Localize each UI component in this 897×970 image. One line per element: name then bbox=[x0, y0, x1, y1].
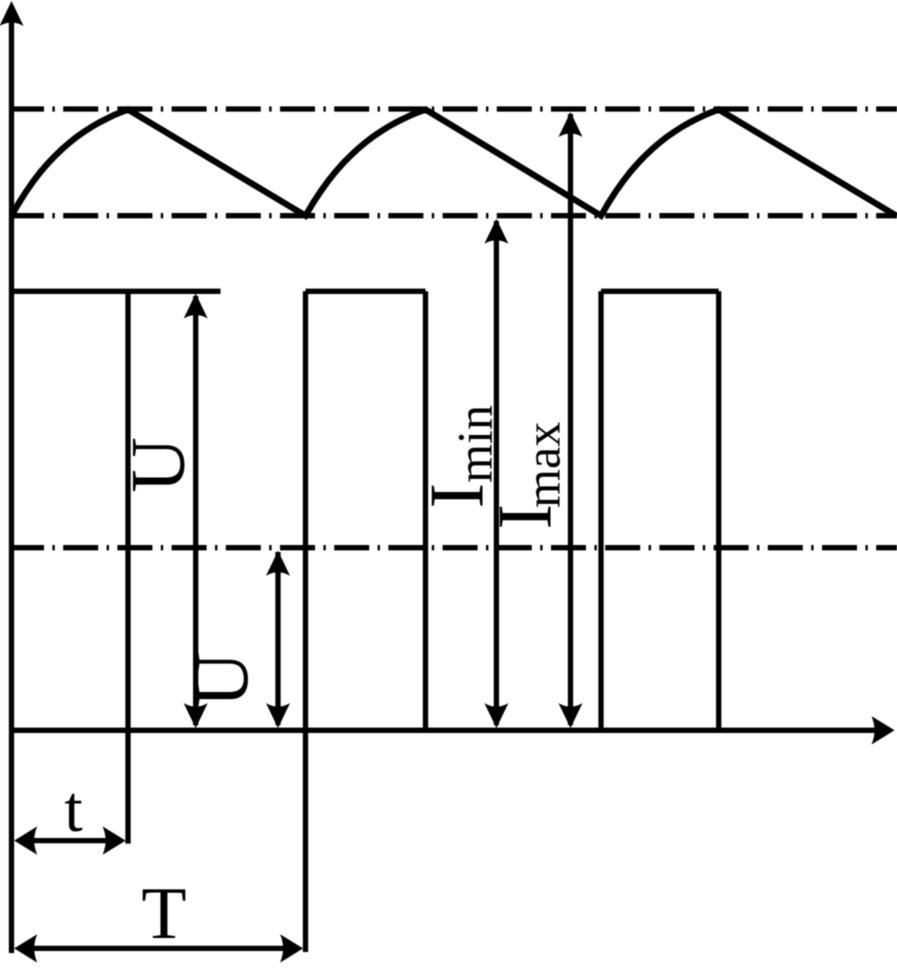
svg-text:U: U bbox=[115, 437, 201, 493]
svg-text:t: t bbox=[64, 773, 82, 846]
svg-text:U: U bbox=[178, 652, 264, 708]
svg-text:T: T bbox=[141, 873, 186, 955]
